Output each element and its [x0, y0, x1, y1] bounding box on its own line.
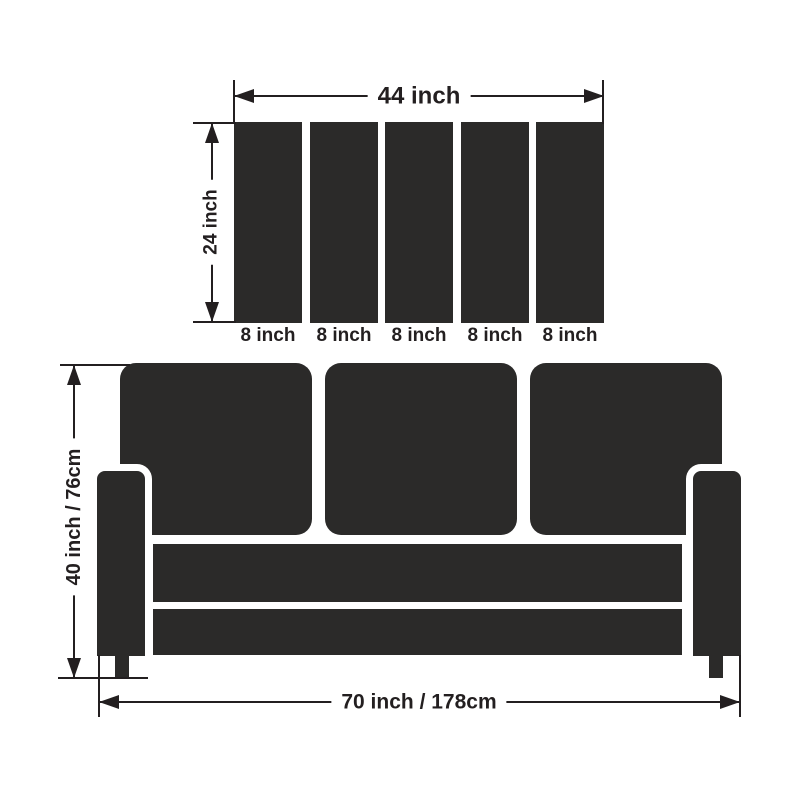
- panel-width-label-5: 8 inch: [543, 325, 598, 347]
- panel-set-width-label: 44 inch: [368, 83, 471, 112]
- sofa-width-label: 70 inch / 178cm: [331, 689, 506, 714]
- sofa-foot-left: [115, 656, 129, 678]
- arrowhead-right-icon: [720, 695, 740, 709]
- arrowhead-up-icon: [205, 123, 219, 143]
- sofa-seat-band: [153, 544, 682, 602]
- arrowhead-left-icon: [234, 89, 254, 103]
- wall-panel-2: [310, 122, 378, 323]
- panel-width-label-3: 8 inch: [392, 325, 447, 347]
- sofa-armrest-left: [97, 471, 145, 656]
- arrowhead-left-icon: [99, 695, 119, 709]
- arrowhead-up-icon: [67, 365, 81, 385]
- arrowhead-right-icon: [584, 89, 604, 103]
- panel-width-label-2: 8 inch: [317, 325, 372, 347]
- panel-width-label-4: 8 inch: [468, 325, 523, 347]
- panel-width-label-1: 8 inch: [241, 325, 296, 347]
- wall-panel-5: [536, 122, 604, 323]
- arrowhead-down-icon: [205, 302, 219, 322]
- panel-height-label: 24 inch: [201, 179, 224, 264]
- wall-panel-4: [461, 122, 529, 323]
- sofa-back-cushion-middle: [325, 363, 517, 535]
- dimension-diagram: 44 inch 24 inch 8 inch 8 inch 8 inch 8 i…: [0, 0, 800, 800]
- wall-panel-1: [234, 122, 302, 323]
- sofa-base-band: [153, 609, 682, 655]
- sofa-back-cushion-left: [120, 363, 312, 535]
- sofa-height-label: 40 inch / 76cm: [62, 439, 86, 596]
- wall-panel-3: [385, 122, 453, 323]
- sofa-armrest-right: [693, 471, 741, 656]
- sofa-foot-right: [709, 656, 723, 678]
- arrowhead-down-icon: [67, 658, 81, 678]
